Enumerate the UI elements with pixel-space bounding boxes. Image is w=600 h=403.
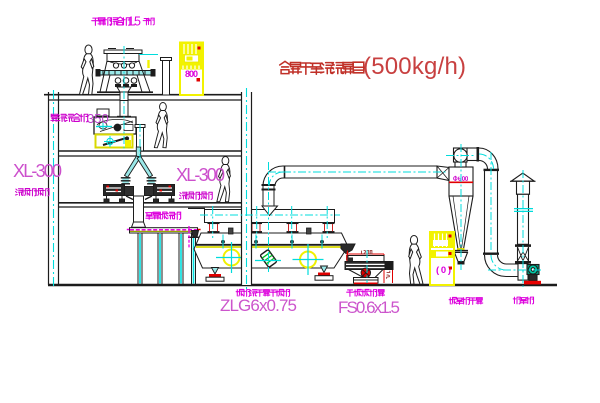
svg-text:XL-300: XL-300 (176, 165, 225, 185)
svg-text:350: 350 (87, 111, 109, 126)
svg-text:(500kg/h): (500kg/h) (363, 53, 466, 80)
svg-text:800: 800 (185, 69, 198, 79)
svg-text:ZLG6x0.75: ZLG6x0.75 (220, 296, 297, 315)
svg-text:(0): (0) (436, 265, 451, 276)
svg-text:FS0.6x1.5: FS0.6x1.5 (338, 298, 400, 317)
svg-text:XL-300: XL-300 (13, 161, 62, 181)
